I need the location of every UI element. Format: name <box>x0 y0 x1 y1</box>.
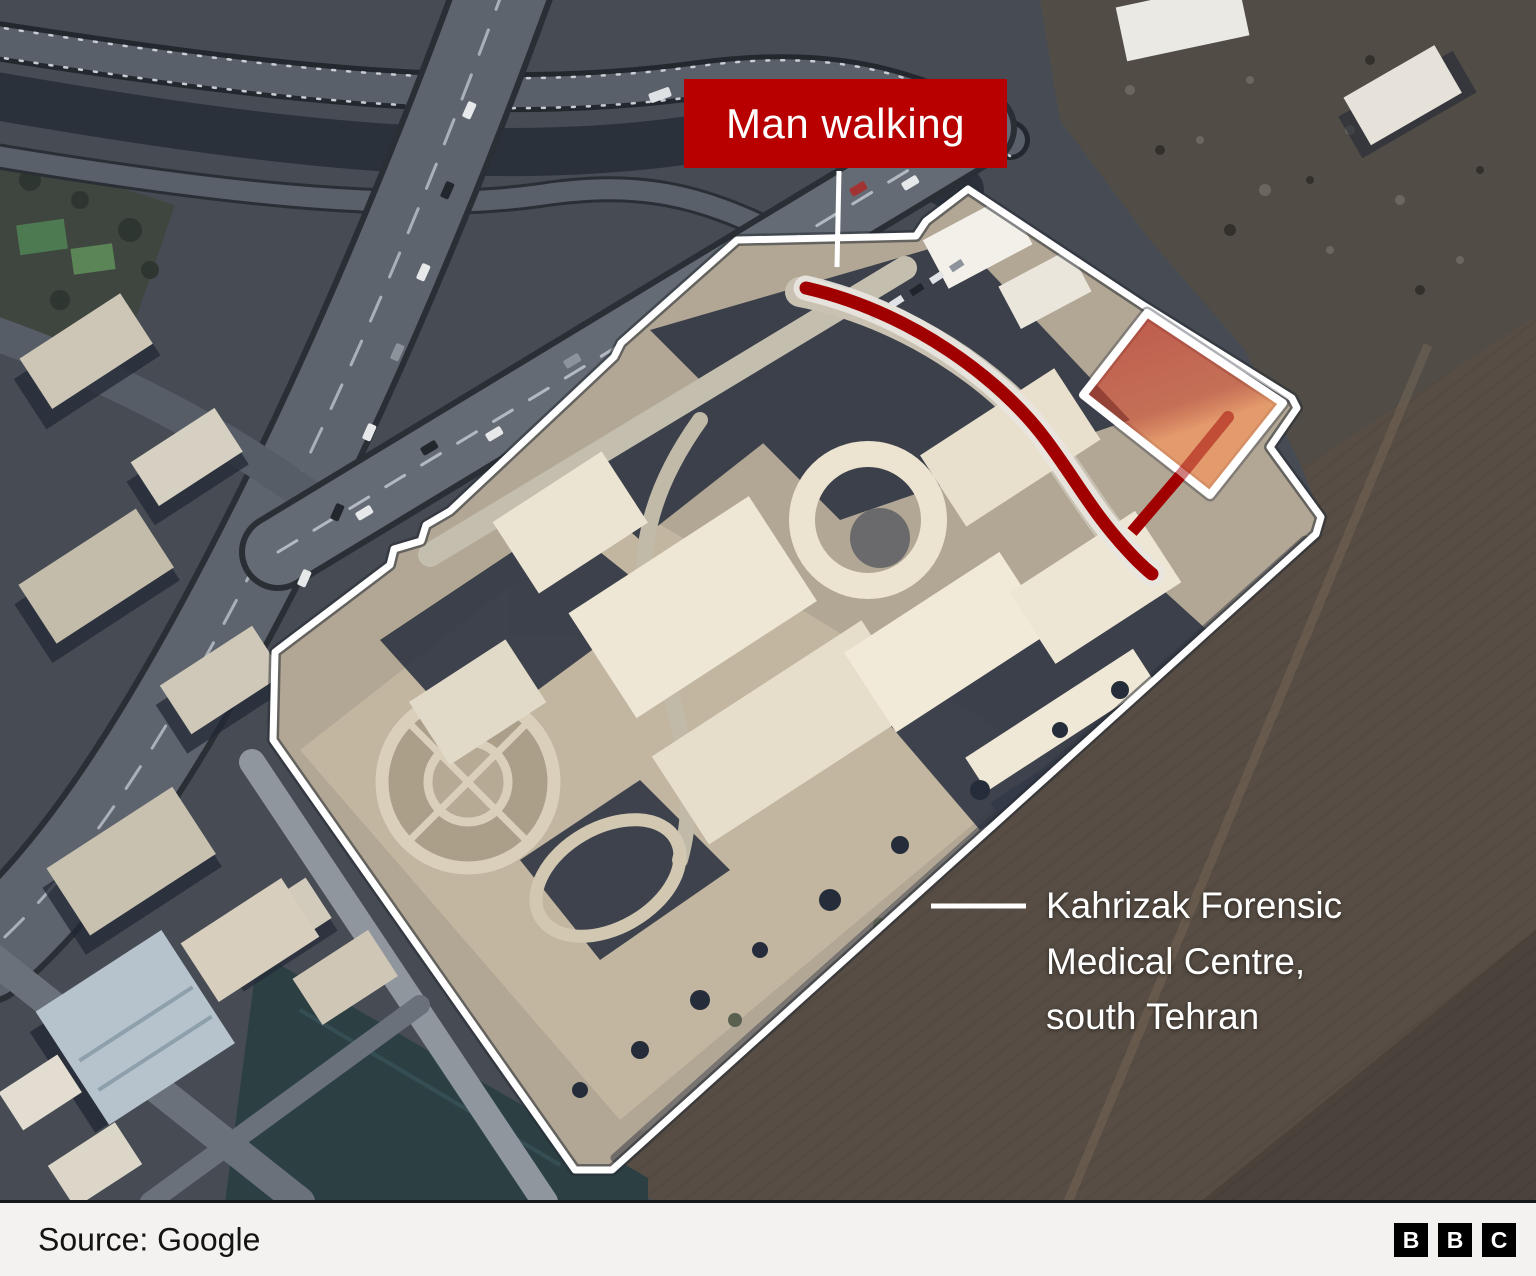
footer: Source: Google B B C <box>0 1200 1536 1276</box>
bbc-map-graphic: Man walking Kahrizak Forensic Medical Ce… <box>0 0 1536 1276</box>
source-credit: Source: Google <box>38 1221 260 1258</box>
bbc-logo-block: B <box>1438 1223 1472 1257</box>
callout-pointer-line <box>837 171 839 267</box>
man-walking-callout: Man walking <box>684 79 1007 168</box>
bbc-logo-block: C <box>1482 1223 1516 1257</box>
man-walking-label: Man walking <box>726 100 965 148</box>
bbc-logo-block: B <box>1394 1223 1428 1257</box>
bbc-logo: B B C <box>1394 1223 1516 1257</box>
facility-label: Kahrizak Forensic Medical Centre, south … <box>1046 878 1342 1045</box>
facility-label-line3: south Tehran <box>1046 989 1342 1045</box>
facility-label-line1: Kahrizak Forensic <box>1046 878 1342 934</box>
facility-label-line2: Medical Centre, <box>1046 934 1342 990</box>
